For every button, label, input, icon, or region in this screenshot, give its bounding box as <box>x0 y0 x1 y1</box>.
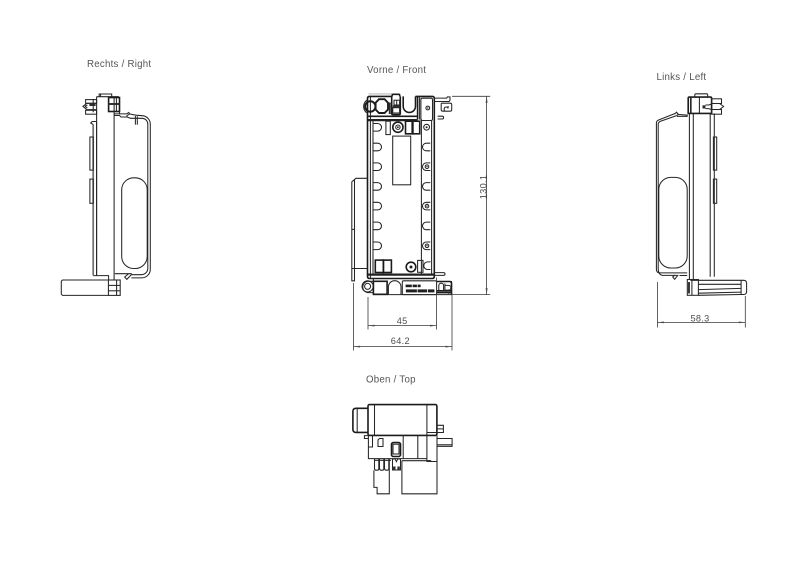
svg-text:Links / Left: Links / Left <box>657 72 707 83</box>
svg-text:130.1: 130.1 <box>478 175 488 200</box>
svg-text:Oben / Top: Oben / Top <box>366 374 416 385</box>
svg-text:Vorne / Front: Vorne / Front <box>367 65 426 76</box>
svg-text:Rechts / Right: Rechts / Right <box>87 59 151 70</box>
svg-text:58.3: 58.3 <box>691 314 710 324</box>
svg-text:64.2: 64.2 <box>391 336 410 346</box>
svg-text:45: 45 <box>397 316 408 326</box>
